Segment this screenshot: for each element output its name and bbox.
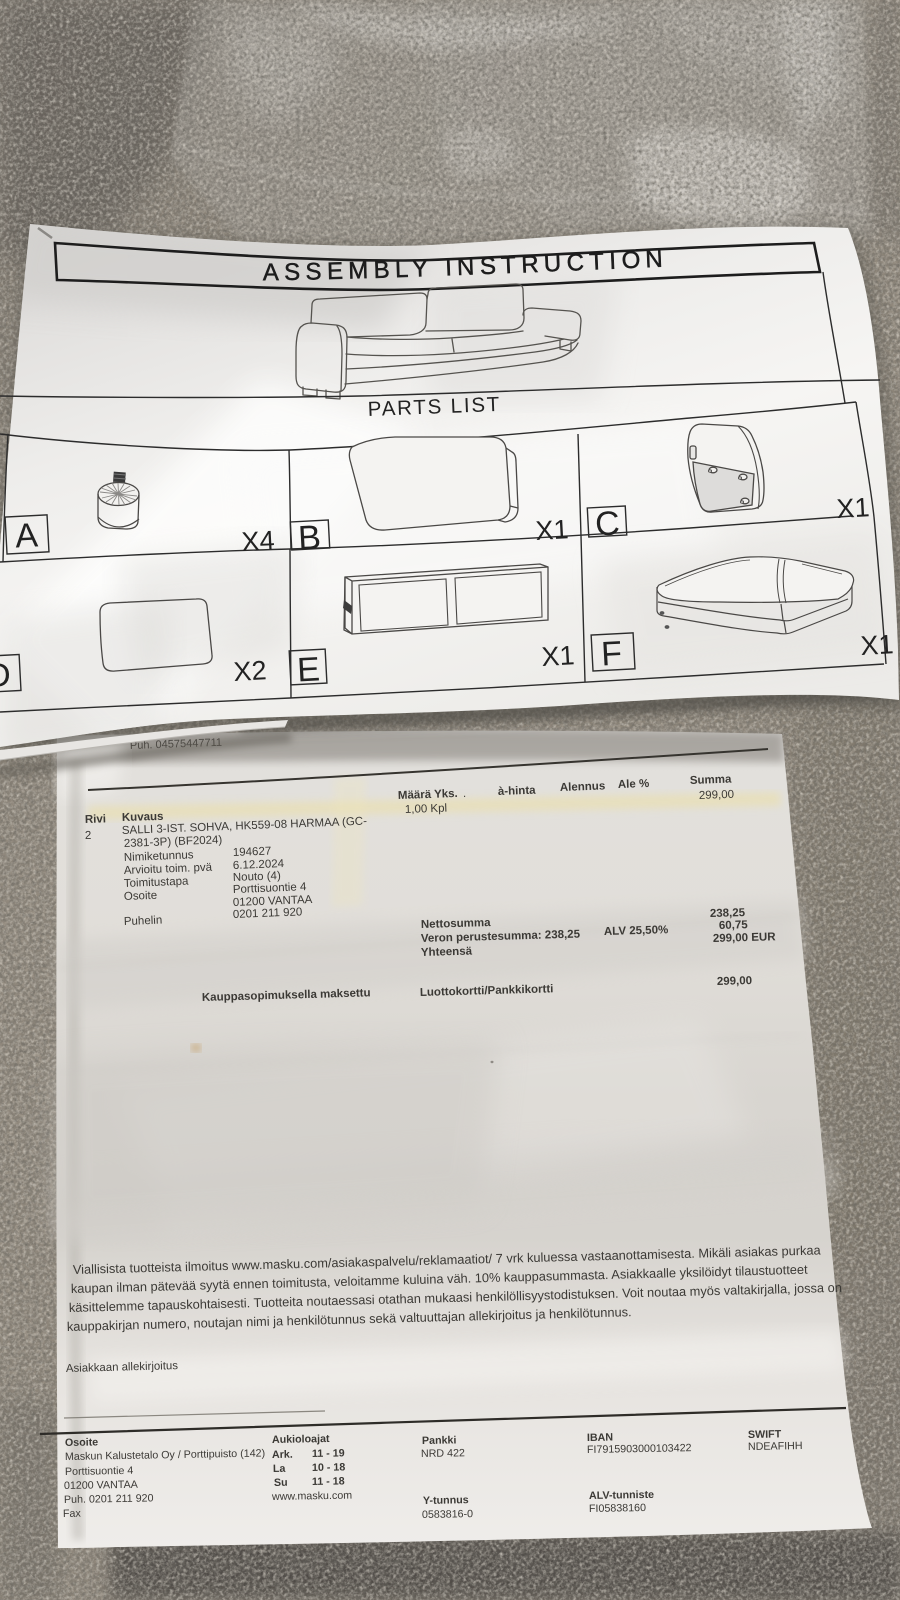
svg-text:NRD 422: NRD 422 [421,1447,465,1460]
svg-text:01200 VANTAA: 01200 VANTAA [64,1479,139,1492]
svg-text:299,00 EUR: 299,00 EUR [713,931,777,945]
svg-text:SWIFT: SWIFT [748,1428,782,1441]
svg-text:FI05838160: FI05838160 [589,1502,646,1515]
svg-text:Rivi: Rivi [85,813,106,826]
svg-text:299,00: 299,00 [699,789,735,802]
svg-text:.: . [463,788,467,800]
svg-text:à-hinta: à-hinta [498,785,537,798]
svg-text:Ale %: Ale % [618,778,650,791]
svg-text:Summa: Summa [690,774,733,787]
svg-text:X1: X1 [860,629,895,661]
svg-text:Osoite: Osoite [65,1436,99,1449]
svg-text:Toimitustapa: Toimitustapa [124,876,190,890]
svg-text:Su: Su [274,1477,288,1489]
svg-text:11 - 18: 11 - 18 [312,1475,345,1488]
svg-text:Puhelin: Puhelin [124,915,163,928]
svg-text:194627: 194627 [233,846,272,859]
svg-text:X1: X1 [541,640,576,672]
svg-text:0583816-0: 0583816-0 [422,1508,473,1521]
svg-text:E: E [296,650,321,689]
svg-text:B: B [297,518,322,557]
svg-text:Puh. 0201 211 920: Puh. 0201 211 920 [64,1492,154,1506]
svg-text:X4: X4 [241,525,276,557]
svg-text:ALV 25,50%: ALV 25,50% [604,924,669,938]
svg-text:238,25: 238,25 [710,907,746,920]
svg-text:ALV-tunniste: ALV-tunniste [589,1489,654,1502]
svg-text:IBAN: IBAN [587,1432,613,1444]
svg-text:Y-tunnus: Y-tunnus [423,1494,469,1507]
svg-text:Ark.: Ark. [272,1449,293,1461]
svg-text:10 - 18: 10 - 18 [312,1461,346,1474]
svg-text:Fax: Fax [63,1508,82,1520]
svg-text:FI7915903000103422: FI7915903000103422 [587,1442,692,1456]
svg-text:Pankki: Pankki [422,1434,457,1447]
svg-text:1,00 Kpl: 1,00 Kpl [405,803,448,816]
svg-text:Nettosumma: Nettosumma [421,917,492,931]
svg-text:La: La [273,1463,287,1475]
svg-text:X2: X2 [233,655,268,687]
svg-text:2: 2 [85,830,92,842]
svg-text:F: F [600,635,623,674]
svg-text:A: A [14,516,39,555]
svg-text:Osoite: Osoite [124,890,158,903]
svg-text:Porttisuontie 4: Porttisuontie 4 [65,1465,134,1478]
svg-text:299,00: 299,00 [717,975,753,988]
svg-text:X1: X1 [535,514,570,546]
svg-text:11 - 19: 11 - 19 [312,1447,345,1460]
svg-text:Kuvaus: Kuvaus [122,811,164,824]
svg-text:60,75: 60,75 [719,919,749,932]
svg-text:D: D [0,656,12,695]
svg-text:X1: X1 [836,492,871,524]
svg-text:Alennus: Alennus [560,780,606,794]
svg-text:C: C [594,504,621,543]
svg-text:Määrä Yks.: Määrä Yks. [398,788,458,802]
svg-text:Aukioloajat: Aukioloajat [272,1433,330,1446]
svg-text:www.masku.com: www.masku.com [271,1490,352,1503]
svg-text:Yhteensä: Yhteensä [421,946,473,959]
svg-text:NDEAFIHH: NDEAFIHH [748,1440,803,1453]
